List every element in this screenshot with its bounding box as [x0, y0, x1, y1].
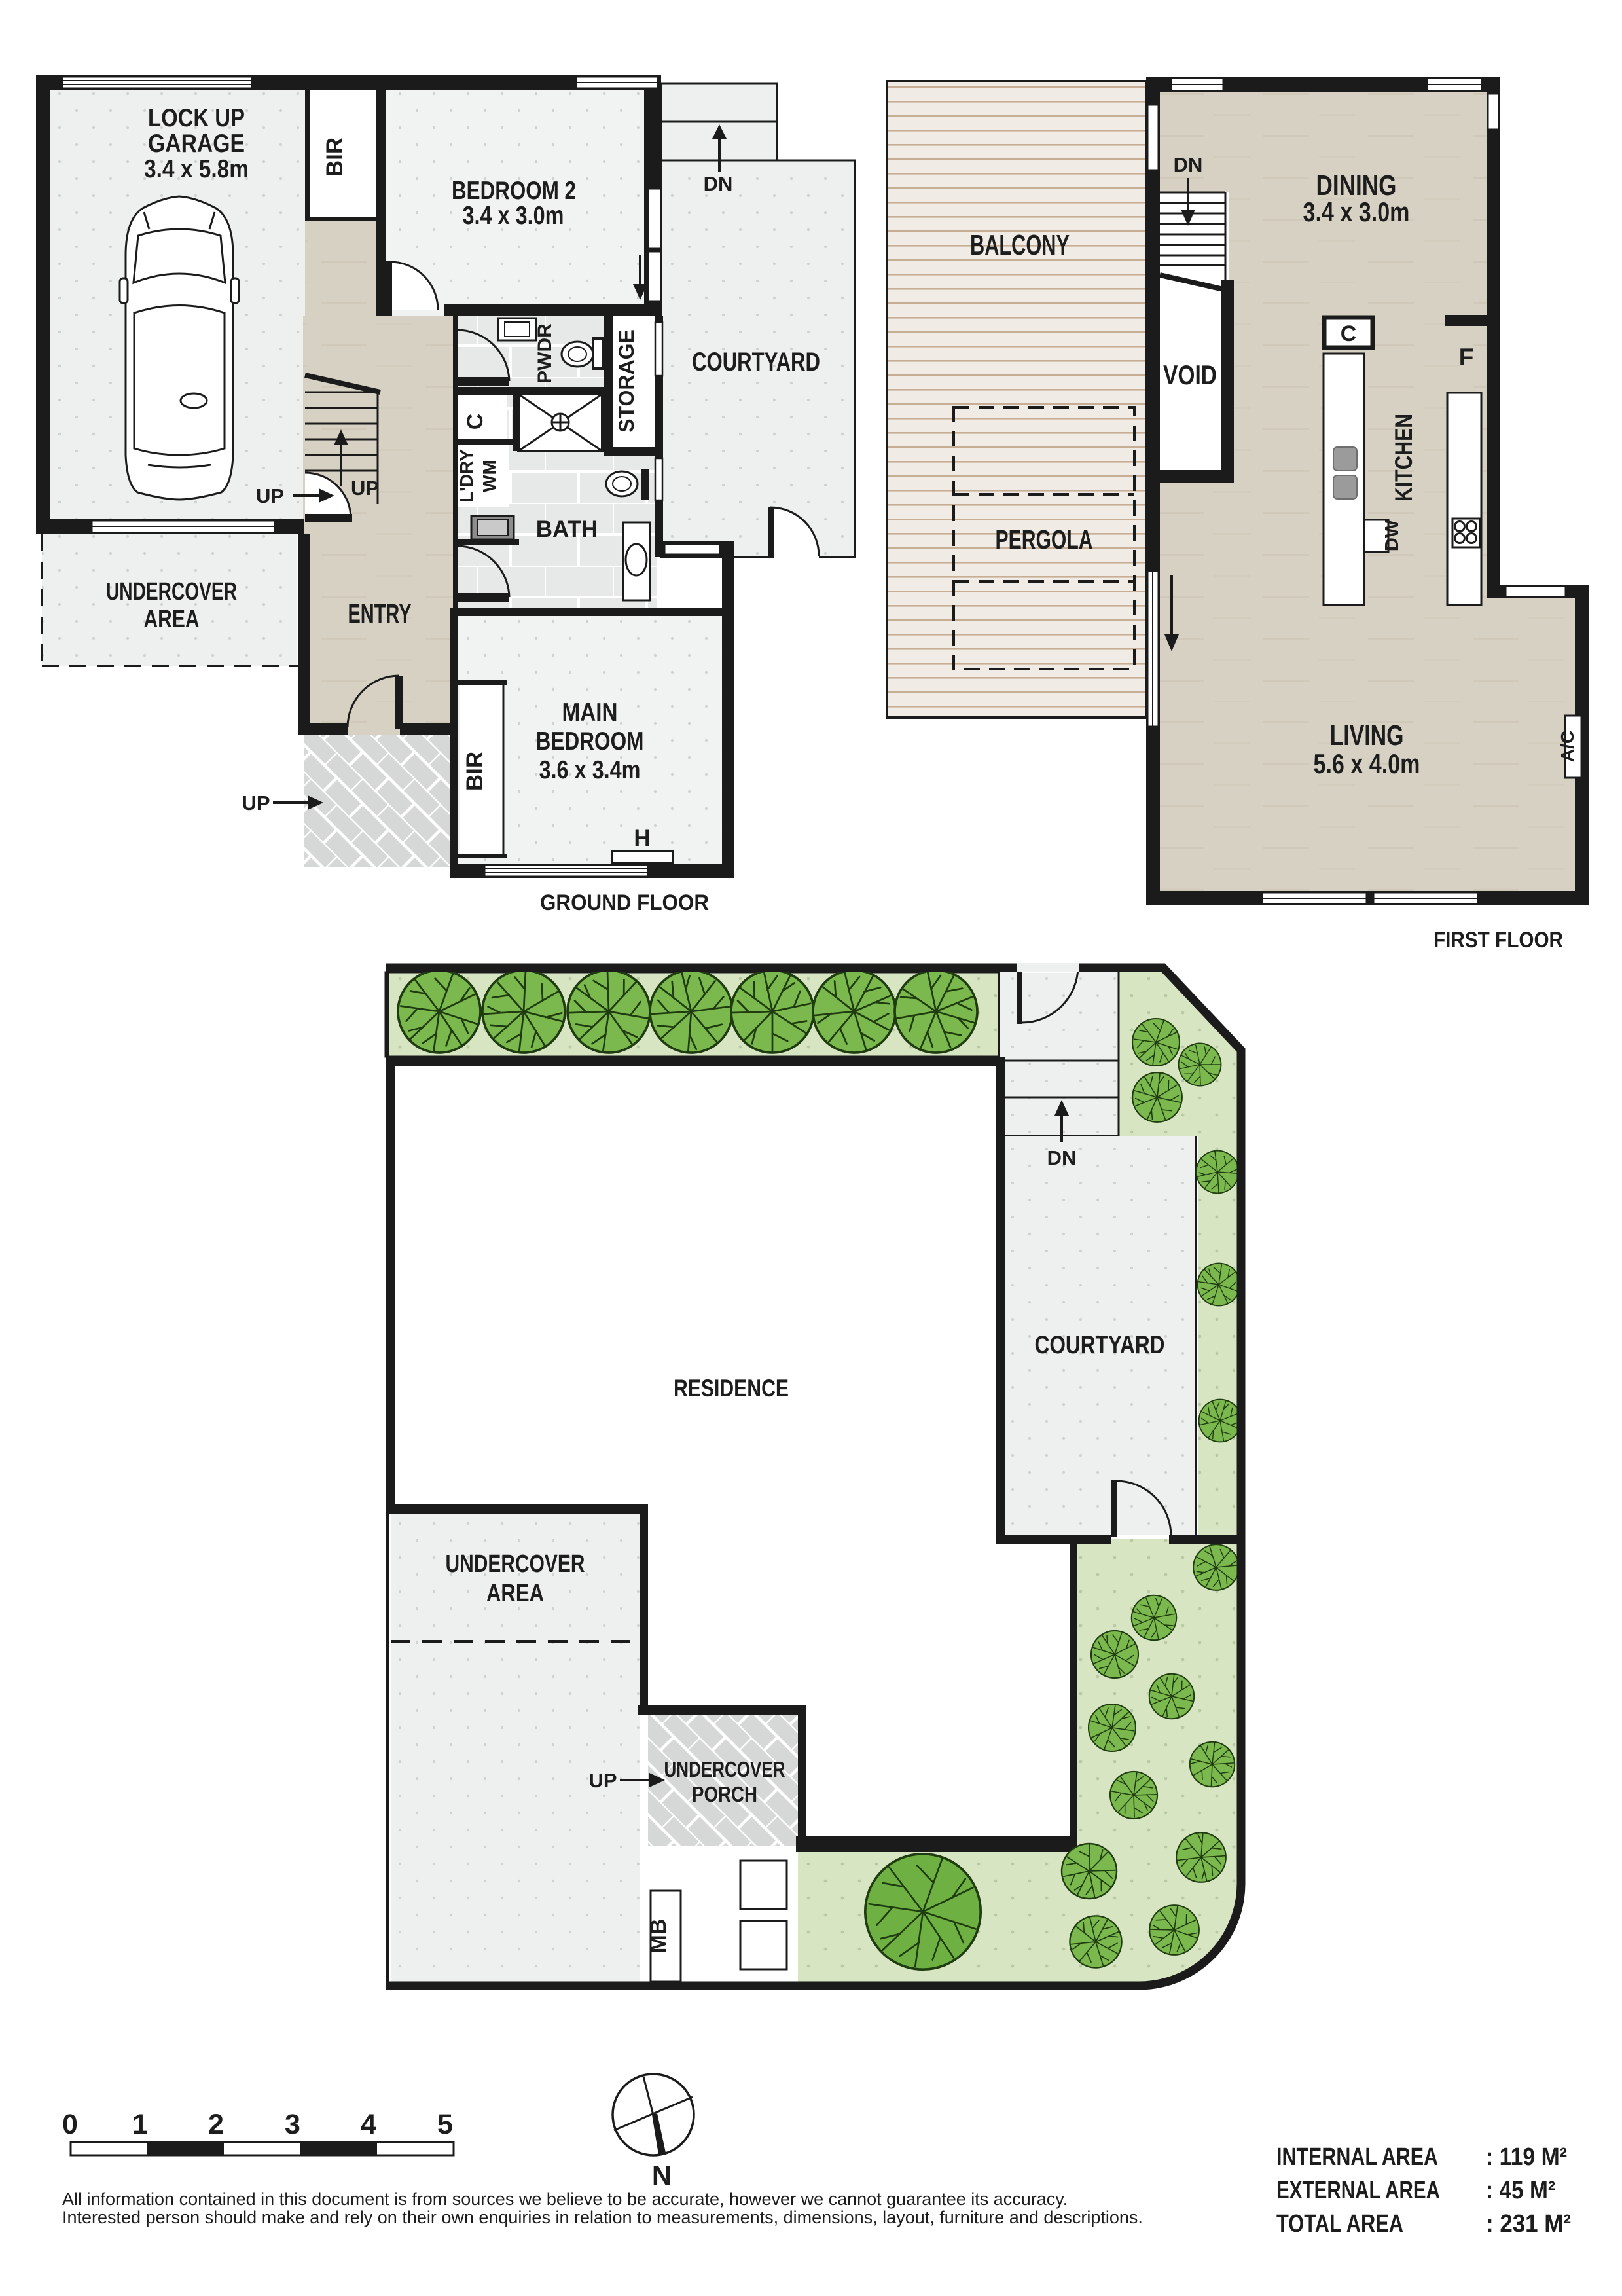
svg-text:WM: WM [479, 460, 499, 492]
svg-text:0: 0 [62, 2109, 78, 2140]
svg-text:RESIDENCE: RESIDENCE [674, 1375, 789, 1402]
svg-text:UP: UP [588, 1769, 617, 1792]
svg-text:AREA: AREA [486, 1580, 544, 1607]
svg-text:C: C [1341, 321, 1357, 346]
svg-text:: 45 M²: : 45 M² [1486, 2177, 1555, 2204]
svg-text:COURTYARD: COURTYARD [1035, 1331, 1165, 1359]
svg-text:KITCHEN: KITCHEN [1390, 414, 1417, 501]
svg-text:5: 5 [437, 2109, 453, 2140]
svg-text:FIRST FLOOR: FIRST FLOOR [1433, 928, 1563, 953]
svg-text:UNDERCOVER: UNDERCOVER [106, 578, 237, 606]
svg-text:BIR: BIR [322, 137, 348, 177]
svg-text:3.4 x 5.8m: 3.4 x 5.8m [144, 155, 249, 183]
svg-text:C: C [463, 414, 488, 430]
svg-text:MAIN: MAIN [562, 699, 618, 727]
svg-text:Interested person should make: Interested person should make and rely o… [62, 2208, 1143, 2227]
svg-text:STORAGE: STORAGE [615, 329, 638, 433]
svg-text:2: 2 [208, 2109, 224, 2140]
svg-text:PORCH: PORCH [692, 1782, 757, 1806]
svg-text:ENTRY: ENTRY [348, 598, 412, 629]
svg-text:5.6 x 4.0m: 5.6 x 4.0m [1314, 748, 1420, 779]
svg-text:4: 4 [361, 2109, 376, 2140]
svg-text:3: 3 [285, 2109, 300, 2140]
svg-text:All information contained in t: All information contained in this docume… [62, 2189, 1068, 2209]
svg-text:UNDERCOVER: UNDERCOVER [664, 1757, 785, 1781]
svg-text:UP: UP [351, 477, 379, 500]
svg-text:UP: UP [256, 484, 284, 507]
svg-text:PWDR: PWDR [534, 323, 556, 384]
svg-text:L'DRY: L'DRY [456, 449, 477, 503]
svg-text:: 231 M²: : 231 M² [1486, 2210, 1571, 2238]
svg-text:LOCK UP: LOCK UP [148, 104, 245, 132]
svg-text:MB: MB [646, 1919, 671, 1954]
svg-text:3.4 x 3.0m: 3.4 x 3.0m [463, 202, 564, 230]
svg-text:COURTYARD: COURTYARD [692, 348, 820, 376]
svg-text:3.6 x 3.4m: 3.6 x 3.4m [539, 756, 641, 784]
svg-text:DW: DW [1382, 519, 1403, 551]
svg-text:3.4 x 3.0m: 3.4 x 3.0m [1303, 196, 1410, 227]
svg-text:GARAGE: GARAGE [148, 130, 245, 158]
svg-text:N: N [652, 2160, 672, 2191]
svg-text:DN: DN [1174, 153, 1203, 176]
svg-text:1: 1 [132, 2109, 148, 2140]
svg-text:AREA: AREA [144, 606, 200, 633]
svg-text:BATH: BATH [536, 517, 598, 542]
svg-text:F: F [1459, 344, 1474, 371]
svg-text:DN: DN [1047, 1146, 1077, 1169]
svg-text:BEDROOM: BEDROOM [536, 727, 644, 756]
svg-text:INTERNAL AREA: INTERNAL AREA [1276, 2143, 1438, 2171]
svg-text:UP: UP [242, 792, 270, 814]
svg-text:BALCONY: BALCONY [970, 229, 1070, 261]
svg-text:BEDROOM 2: BEDROOM 2 [452, 177, 576, 205]
svg-text:DN: DN [704, 172, 733, 195]
svg-text:H: H [634, 826, 650, 851]
svg-text:PERGOLA: PERGOLA [996, 524, 1093, 555]
svg-text:TOTAL AREA: TOTAL AREA [1276, 2210, 1403, 2238]
svg-text:GROUND FLOOR: GROUND FLOOR [540, 890, 709, 915]
svg-text:BIR: BIR [462, 752, 488, 791]
svg-text:EXTERNAL AREA: EXTERNAL AREA [1276, 2177, 1440, 2204]
svg-text:UNDERCOVER: UNDERCOVER [446, 1550, 585, 1578]
svg-text:LIVING: LIVING [1330, 720, 1404, 752]
svg-text:VOID: VOID [1163, 359, 1217, 390]
svg-text:A/C: A/C [1557, 731, 1577, 762]
svg-text:: 119 M²: : 119 M² [1486, 2143, 1567, 2171]
